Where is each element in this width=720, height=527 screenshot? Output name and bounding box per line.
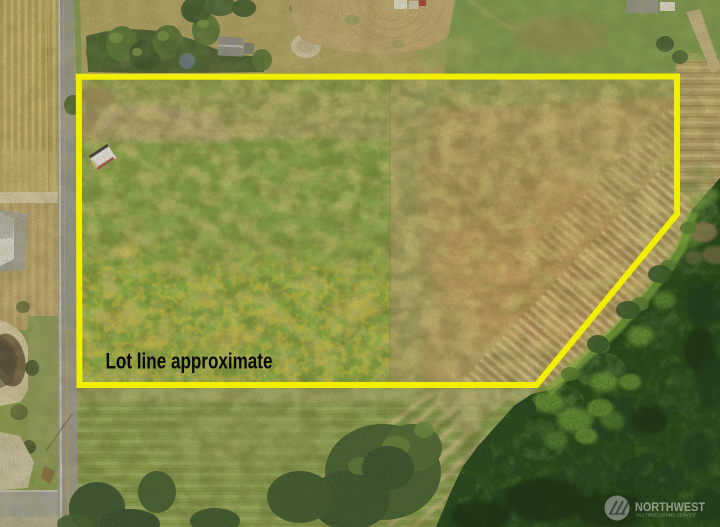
svg-text:MULTIPLE LISTING SERVICE: MULTIPLE LISTING SERVICE — [636, 513, 696, 518]
svg-text:Lot line approximate: Lot line approximate — [106, 349, 273, 374]
